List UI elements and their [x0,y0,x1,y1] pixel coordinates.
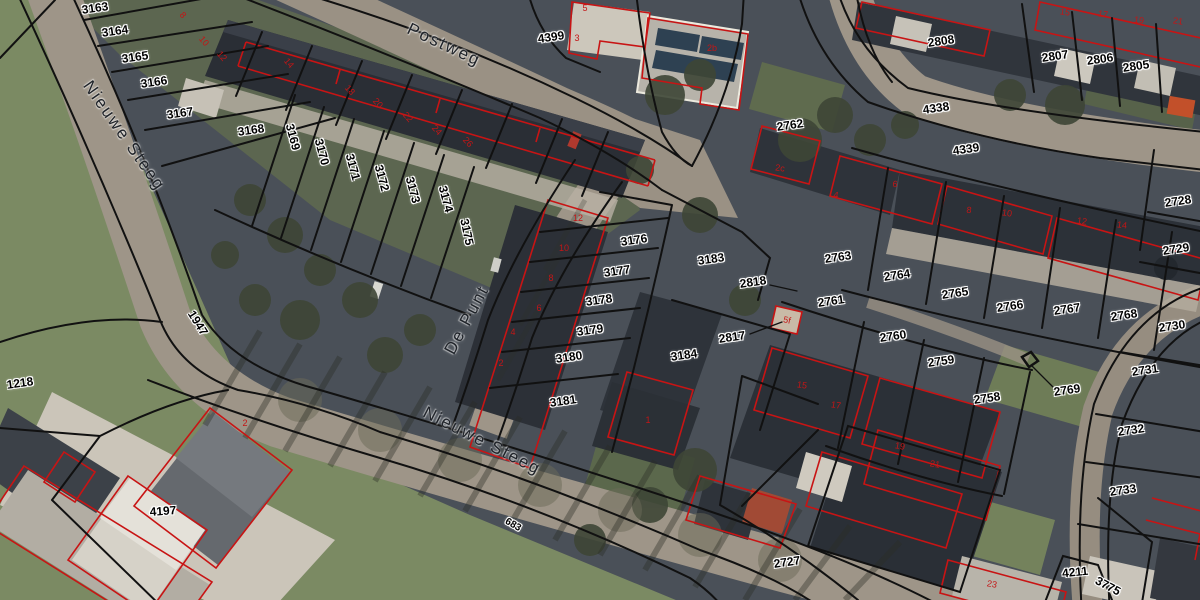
cadastral-map-viewport[interactable]: PostwegNieuwe SteegNieuwe SteegDe Punt31… [0,0,1200,600]
map-canvas[interactable] [0,0,1200,600]
